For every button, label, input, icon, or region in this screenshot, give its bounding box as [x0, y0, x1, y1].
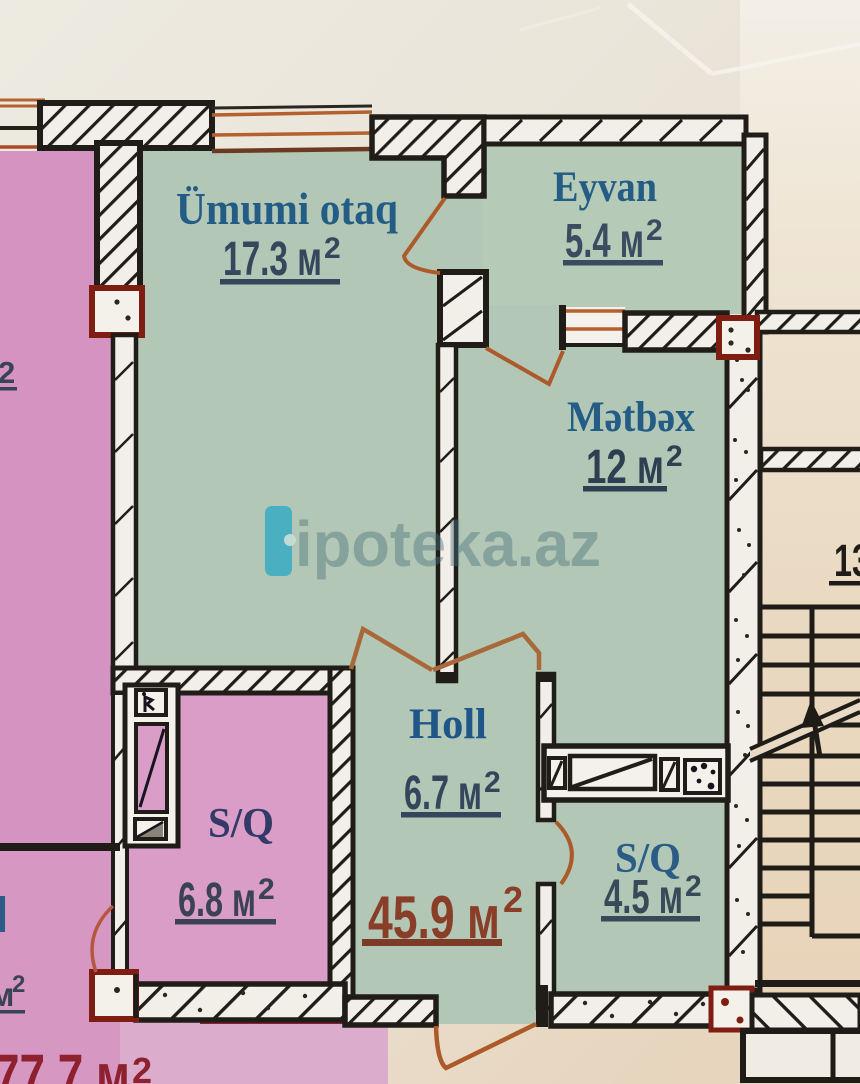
svg-text:2: 2: [258, 873, 275, 906]
svg-text:13: 13: [834, 535, 860, 586]
svg-text:2: 2: [666, 440, 683, 473]
svg-text:2: 2: [685, 870, 702, 903]
svg-text:ipoteka.az: ipoteka.az: [295, 508, 601, 580]
svg-text:2: 2: [324, 232, 341, 265]
svg-text:17.3 м: 17.3 м: [223, 233, 322, 286]
svg-text:S/Q: S/Q: [208, 801, 274, 847]
svg-text:2: 2: [484, 766, 501, 799]
svg-text:Mətbəx: Mətbəx: [567, 394, 695, 441]
svg-text:2: 2: [0, 355, 15, 390]
svg-text:77.7 м: 77.7 м: [0, 1042, 130, 1084]
svg-text:2: 2: [12, 971, 25, 998]
svg-text:Holl: Holl: [409, 701, 487, 748]
svg-text:Ümumi otaq: Ümumi otaq: [176, 184, 398, 234]
svg-text:Eyvan: Eyvan: [553, 164, 657, 211]
svg-text:2: 2: [132, 1050, 152, 1084]
svg-text:2: 2: [503, 879, 523, 920]
svg-text:2: 2: [646, 214, 663, 247]
